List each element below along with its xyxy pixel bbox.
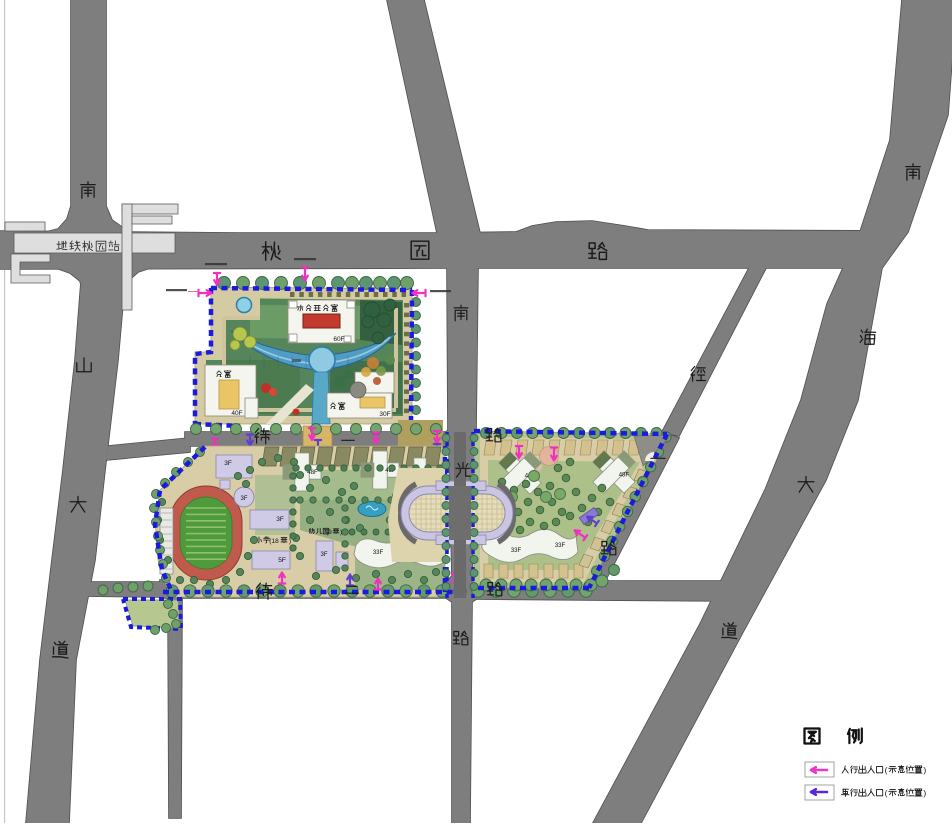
svg-text:(: (	[885, 765, 888, 775]
svg-text:60F: 60F	[333, 336, 344, 343]
svg-text:48F: 48F	[619, 472, 630, 478]
svg-text:3F: 3F	[224, 460, 232, 467]
svg-text:): )	[923, 788, 926, 798]
svg-text:3F: 3F	[240, 496, 247, 502]
svg-text:40F: 40F	[231, 410, 242, 417]
svg-text:5F: 5F	[278, 557, 286, 564]
svg-text:30F: 30F	[379, 411, 390, 418]
svg-text:33F: 33F	[555, 543, 566, 549]
svg-text:(18: (18	[269, 538, 279, 545]
svg-text:(: (	[885, 788, 888, 798]
svg-text:3F: 3F	[320, 552, 327, 558]
svg-text:33F: 33F	[511, 548, 522, 554]
svg-text:(9: (9	[326, 530, 332, 536]
svg-text:33F: 33F	[373, 550, 384, 556]
svg-text:3F: 3F	[276, 516, 284, 523]
svg-text:): )	[923, 765, 926, 775]
svg-text:): )	[289, 538, 291, 545]
